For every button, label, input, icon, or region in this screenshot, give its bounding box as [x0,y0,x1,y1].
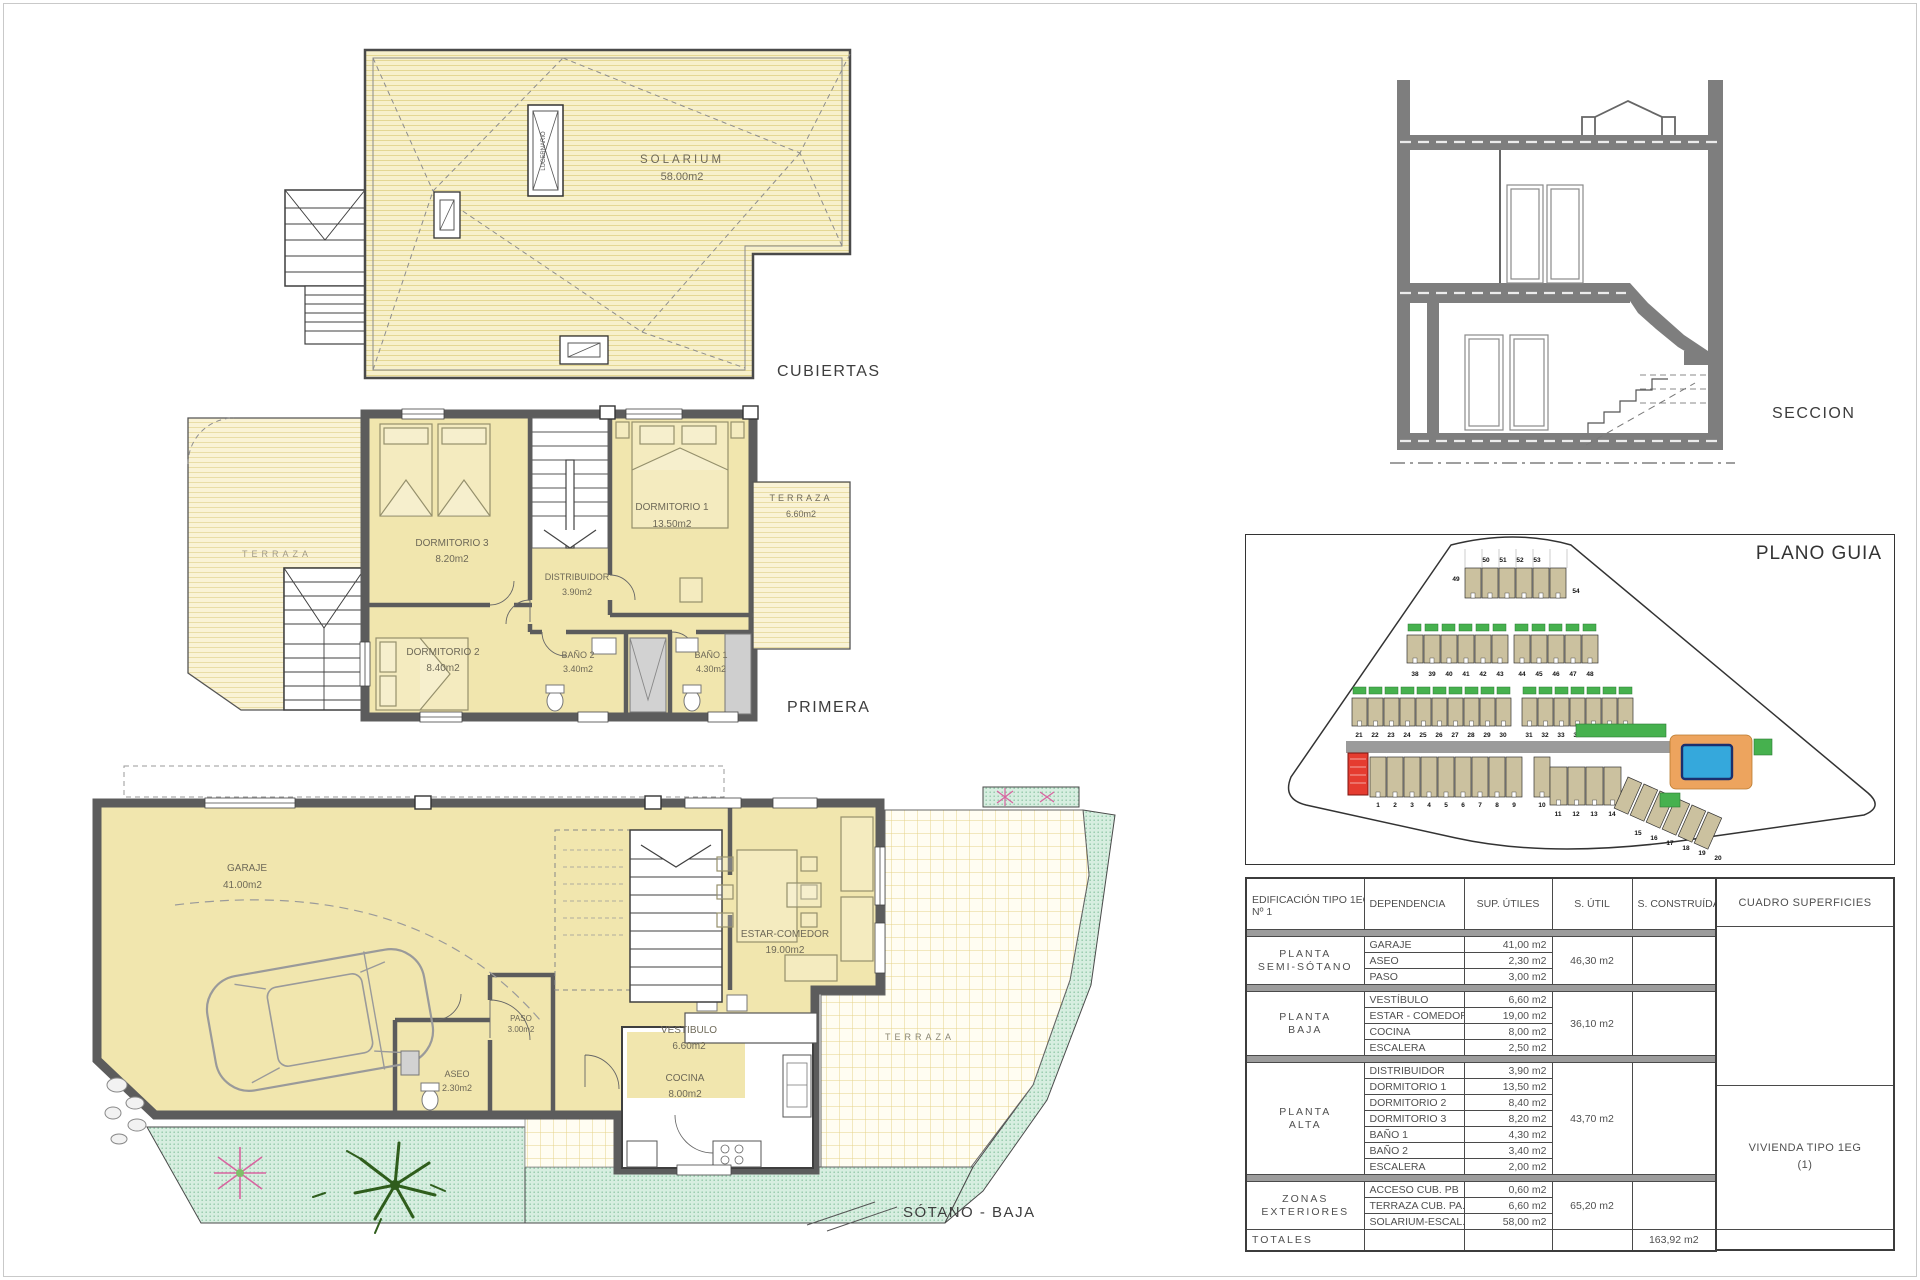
room-name-cell: SOLARIUM-ESCAL. [1364,1214,1464,1230]
skylight-small-icon [434,192,460,238]
distribuidor-area: 3.90m2 [562,587,592,597]
vivienda-line2: (1) [1798,1157,1813,1174]
room-name-cell: ESTAR - COMEDOR [1364,1008,1464,1024]
plot-number: 11 [1555,811,1562,818]
room-area-cell: 2,50 m2 [1464,1040,1552,1056]
floor-name-cell: PLANTAALTA [1246,1063,1364,1175]
plot-number: 33 [1557,732,1565,739]
subtotal-s-util-cell: 36,10 m2 [1552,992,1632,1056]
plot-number: 49 [1452,576,1460,583]
terrace-right-label: TERRAZA [769,493,832,503]
solarium-label: SOLARIUM [640,154,724,166]
plot-number: 50 [1482,557,1490,564]
group-separator-band [1246,1056,1716,1063]
subtotal-s-util-cell: 43,70 m2 [1552,1063,1632,1175]
bano1-area: 4.30m2 [696,664,726,674]
group-separator-band [1246,930,1716,937]
cuadro-superficies-table: EDIFICACIÓN TIPO 1EGNº 1DEPENDENCIASUP. … [1245,877,1717,1252]
plot-number: 48 [1586,671,1594,678]
plot-number: 52 [1516,557,1524,564]
plot-number: 53 [1533,557,1541,564]
plot-number: 14 [1608,811,1616,818]
room-area-cell: 0,60 m2 [1464,1182,1552,1198]
roof-vent-icon [560,336,608,364]
plot-number: 6 [1461,802,1465,809]
plot-number: 16 [1650,835,1658,842]
room-area-cell: 41,00 m2 [1464,937,1552,953]
plot-number: 26 [1435,732,1443,739]
room-name-cell: DORMITORIO 2 [1364,1095,1464,1111]
dormitorio1-label: DORMITORIO 1 [635,502,709,513]
bano1-label: BAÑO 1 [694,650,727,660]
plot-number: 7 [1478,802,1482,809]
dormitorio1-area: 13.50m2 [653,519,692,530]
vestibulo-label: VESTIBULO [661,1025,717,1036]
highlighted-plot-1 [1348,753,1368,795]
room-area-cell: 6,60 m2 [1464,992,1552,1008]
room-name-cell: VESTÍBULO [1364,992,1464,1008]
terrace-left-label: TERRAZA [242,549,312,559]
room-name-cell: ACCESO CUB. PB [1364,1182,1464,1198]
room-area-cell: 4,30 m2 [1464,1127,1552,1143]
plot-number: 54 [1572,588,1580,595]
room-area-cell: 8,40 m2 [1464,1095,1552,1111]
room-name-cell: DORMITORIO 1 [1364,1079,1464,1095]
plot-number: 21 [1355,732,1363,739]
terrace-right-area [753,482,850,649]
totales-empty-2 [1464,1230,1552,1252]
cocina-label: COCINA [666,1073,705,1084]
terrace-stair-icon [284,568,365,710]
plot-number: 18 [1682,845,1690,852]
plot-number: 30 [1499,732,1507,739]
site-plan-box: PLANO GUIA 49505152535438394041424344454… [1245,534,1895,865]
terrace-right-area-value: 6.60m2 [786,509,816,519]
plot-number: 5 [1444,802,1448,809]
room-name-cell: ESCALERA [1364,1040,1464,1056]
totales-empty-3 [1552,1230,1632,1252]
plot-number: 10 [1538,802,1546,809]
plano-guia-title: PLANO GUIA [1756,543,1882,565]
plot-number: 28 [1467,732,1475,739]
plot-number: 40 [1445,671,1453,678]
aseo-label: ASEO [444,1069,469,1079]
lucernario-label: LUCERNARIO [541,131,547,171]
floor-name-cell: PLANTABAJA [1246,992,1364,1056]
group-separator-band [1246,1175,1716,1182]
room-area-cell: 2,30 m2 [1464,953,1552,969]
room-area-cell: 6,60 m2 [1464,1198,1552,1214]
room-name-cell: PASO [1364,969,1464,985]
section-doors-lower [1465,335,1548,430]
room-area-cell: 2,00 m2 [1464,1159,1552,1175]
plot-number: 32 [1541,732,1549,739]
plot-number: 51 [1499,557,1507,564]
plot-number: 9 [1512,802,1516,809]
dormitorio2-label: DORMITORIO 2 [406,647,480,658]
plot-number: 22 [1371,732,1379,739]
table-header-s-construida: S. CONSTRUÍDA [1632,878,1716,930]
roof-exterior-stair-icon [285,190,365,344]
plot-number: 43 [1496,671,1504,678]
plot-number: 3 [1410,802,1414,809]
s-construida-cell [1632,992,1716,1056]
plot-number: 44 [1518,671,1526,678]
estar-label: ESTAR-COMEDOR [741,929,829,940]
bano2-area: 3.40m2 [563,664,593,674]
garaje-label: GARAJE [227,863,267,874]
room-name-cell: BAÑO 2 [1364,1143,1464,1159]
cubiertas-title: CUBIERTAS [777,363,881,380]
plot-number: 17 [1666,840,1674,847]
room-area-cell: 8,00 m2 [1464,1024,1552,1040]
table-right-column: CUADRO SUPERFICIES VIVIENDA TIPO 1EG (1) [1715,877,1895,1251]
bano2-label: BAÑO 2 [561,650,594,660]
plot-number: 12 [1572,811,1580,818]
plot-number: 42 [1479,671,1487,678]
room-area-cell: 3,00 m2 [1464,969,1552,985]
plot-number: 1 [1376,802,1380,809]
room-name-cell: ASEO [1364,953,1464,969]
pergola-dashed-outline [124,766,724,797]
plot-number: 15 [1634,830,1642,837]
plot-number: 8 [1495,802,1499,809]
pool-icon [1682,745,1732,779]
subtotal-s-util-cell: 46,30 m2 [1552,937,1632,985]
table-header-s-util: S. ÚTIL [1552,878,1632,930]
aseo-area: 2.30m2 [442,1083,472,1093]
terraza-label: TERRAZA [885,1032,955,1042]
section-drawing [1390,55,1735,475]
surface-table: EDIFICACIÓN TIPO 1EGNº 1DEPENDENCIASUP. … [1245,877,1897,1253]
room-area-cell: 3,90 m2 [1464,1063,1552,1079]
sotano-baja-title: SÓTANO - BAJA [903,1204,1036,1221]
plot-number: 24 [1403,732,1411,739]
cocina-area: 8.00m2 [668,1089,702,1100]
estar-area: 19.00m2 [766,945,805,956]
stove-icon [713,1141,761,1167]
paso-label: PASO [510,1014,532,1023]
plot-number: 25 [1419,732,1427,739]
plot-number: 46 [1552,671,1560,678]
vivienda-tipo-cell: VIVIENDA TIPO 1EG (1) [1717,1085,1893,1229]
dormitorio3-area: 8.20m2 [435,554,469,565]
plot-number: 38 [1411,671,1419,678]
distribuidor-label: DISTRIBUIDOR [545,572,610,582]
subtotal-s-util-cell: 65,20 m2 [1552,1182,1632,1230]
room-area-cell: 13,50 m2 [1464,1079,1552,1095]
plot-number: 47 [1569,671,1577,678]
room-area-cell: 58,00 m2 [1464,1214,1552,1230]
room-name-cell: DISTRIBUIDOR [1364,1063,1464,1079]
table-header-edificacion: EDIFICACIÓN TIPO 1EGNº 1 [1246,878,1364,930]
room-name-cell: BAÑO 1 [1364,1127,1464,1143]
cuadro-superficies-header: CUADRO SUPERFICIES [1717,879,1893,926]
totales-value-cell: 163,92 m2 [1632,1230,1716,1252]
s-construida-cell [1632,1063,1716,1175]
room-name-cell: DORMITORIO 3 [1364,1111,1464,1127]
site-plan-drawing: 4950515253543839404142434445464748212223… [1246,535,1892,862]
skylight-lucernario-icon: LUCERNARIO [528,105,563,196]
vestibulo-area: 6.60m2 [672,1041,706,1052]
plot-number: 20 [1714,855,1722,862]
plot-number: 29 [1483,732,1491,739]
interior-stair-icon [532,418,608,548]
plot-number: 31 [1525,732,1533,739]
paso-area: 3.00m2 [508,1025,535,1034]
table-header-sup-utiles: SUP. ÚTILES [1464,878,1552,930]
room-name-cell: GARAJE [1364,937,1464,953]
site-road [1346,741,1676,753]
room-area-cell: 19,00 m2 [1464,1008,1552,1024]
room-name-cell: COCINA [1364,1024,1464,1040]
vivienda-line1: VIVIENDA TIPO 1EG [1749,1140,1862,1157]
room-name-cell: TERRAZA CUB. PA. [1364,1198,1464,1214]
plot-number: 45 [1535,671,1543,678]
table-header-dependencia: DEPENDENCIA [1364,878,1464,930]
floor-name-cell: PLANTASEMI-SÓTANO [1246,937,1364,985]
roof-plan-cubiertas: LUCERNARIO SOLARIUM 58.00m2 CUBIERTAS [280,38,900,390]
totales-empty-1 [1364,1230,1464,1252]
room-area-cell: 8,20 m2 [1464,1111,1552,1127]
garaje-area: 41.00m2 [223,880,262,891]
group-separator-band [1246,985,1716,992]
dormitorio2-area: 8.40m2 [426,663,460,674]
solarium-area: 58.00m2 [661,171,704,183]
seccion-title: SECCION [1772,405,1855,423]
plot-number: 41 [1462,671,1470,678]
plot-number: 13 [1590,811,1598,818]
plot-number: 39 [1428,671,1436,678]
room-name-cell: ESCALERA [1364,1159,1464,1175]
plot-number: 27 [1451,732,1459,739]
plot-number: 4 [1427,802,1431,809]
section-doors-upper [1507,185,1583,283]
totales-label-cell: TOTALES [1246,1230,1364,1252]
first-floor-plan-primera: TERRAZA TERRAZA 6.60m2 [180,400,880,730]
section-skylight-icon [1582,101,1675,135]
plot-number: 2 [1393,802,1397,809]
primera-title: PRIMERA [787,699,870,716]
floor-name-cell: ZONASEXTERIORES [1246,1182,1364,1230]
stair-icon [630,830,722,1002]
dormitorio3-label: DORMITORIO 3 [415,538,489,549]
plot-number: 19 [1698,850,1706,857]
s-construida-cell [1632,1182,1716,1230]
plot-number: 23 [1387,732,1395,739]
s-construida-cell [1632,937,1716,985]
room-area-cell: 3,40 m2 [1464,1143,1552,1159]
ground-floor-plan-sotano-baja: TERRAZA [85,755,1125,1255]
